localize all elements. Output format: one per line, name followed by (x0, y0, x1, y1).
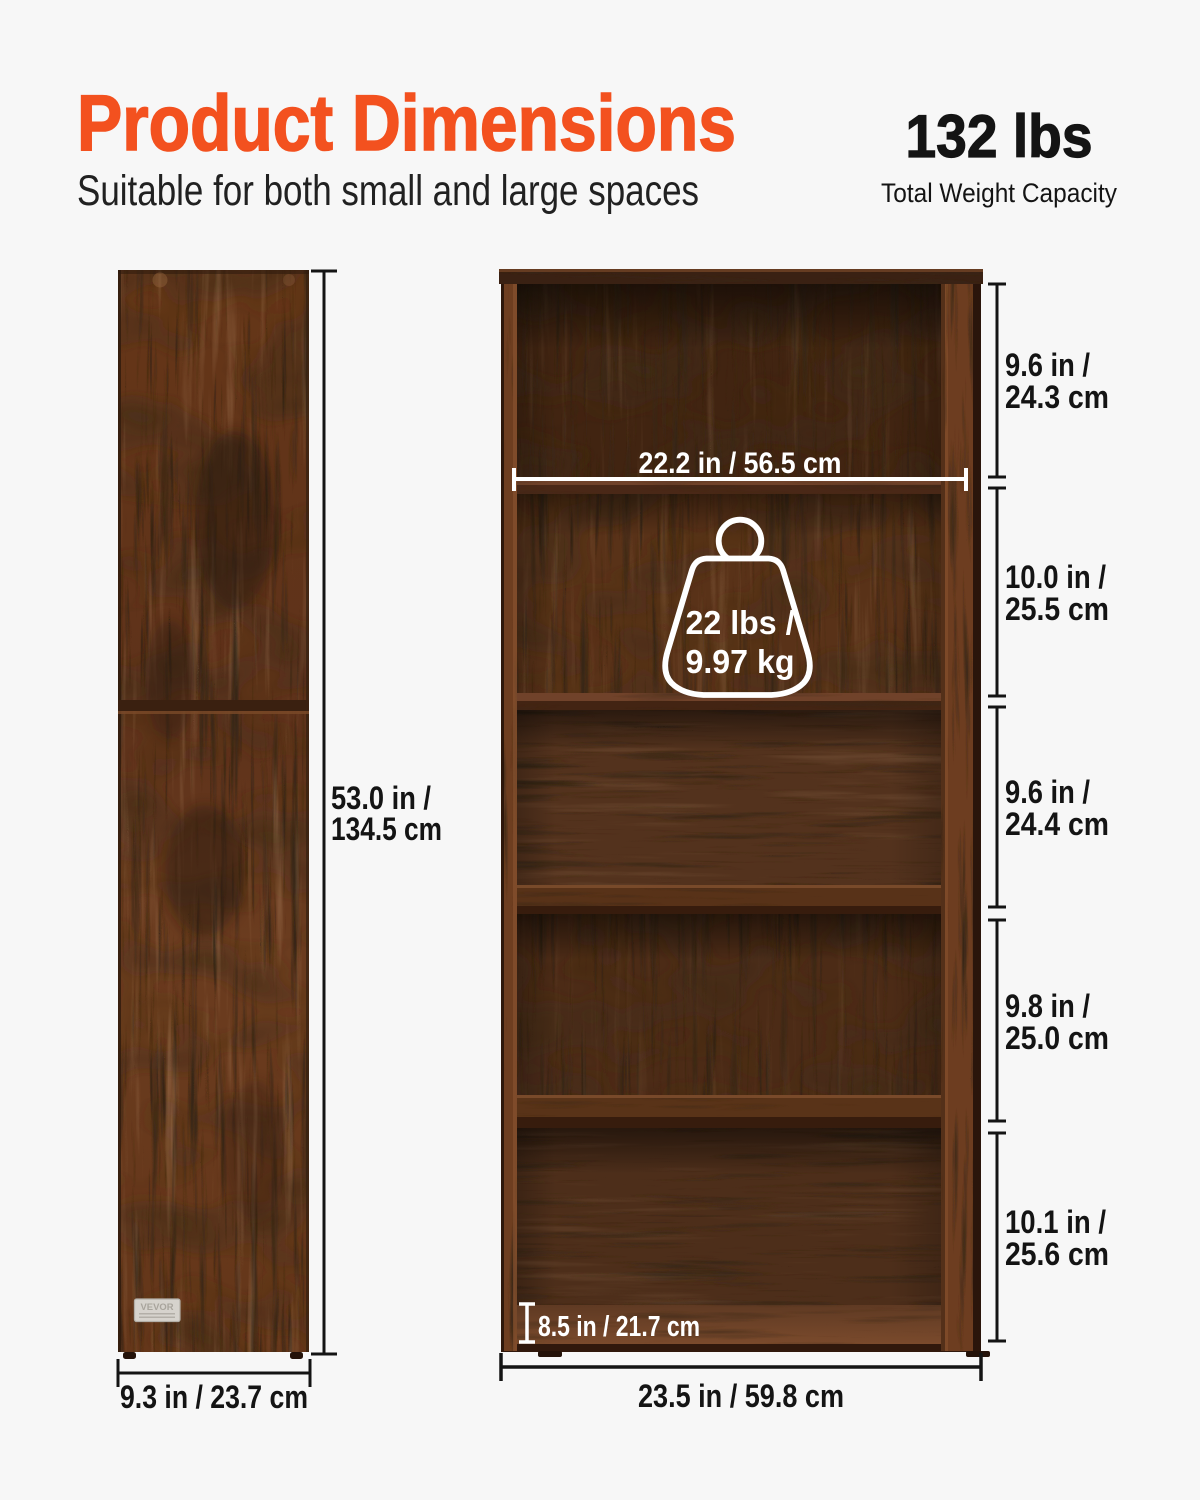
svg-text:24.3 cm: 24.3 cm (1005, 379, 1109, 415)
svg-text:132 lbs: 132 lbs (906, 103, 1093, 170)
svg-text:Product Dimensions: Product Dimensions (77, 78, 736, 167)
svg-text:9.97 kg: 9.97 kg (686, 643, 795, 680)
svg-text:9.6 in /: 9.6 in / (1005, 774, 1090, 810)
svg-text:10.0 in /: 10.0 in / (1005, 559, 1106, 595)
svg-text:9.6 in /: 9.6 in / (1005, 347, 1090, 383)
svg-text:9.3 in / 23.7 cm: 9.3 in / 23.7 cm (120, 1379, 308, 1415)
svg-text:22 lbs /: 22 lbs / (686, 604, 795, 641)
svg-text:Total Weight Capacity: Total Weight Capacity (881, 178, 1117, 208)
svg-text:10.1 in /: 10.1 in / (1005, 1204, 1106, 1240)
svg-text:25.5 cm: 25.5 cm (1005, 591, 1109, 627)
svg-text:23.5 in / 59.8 cm: 23.5 in / 59.8 cm (638, 1378, 844, 1414)
svg-text:VEVOR: VEVOR (141, 1302, 174, 1313)
svg-text:24.4 cm: 24.4 cm (1005, 806, 1109, 842)
svg-text:Suitable for both small and la: Suitable for both small and large spaces (77, 167, 699, 215)
svg-text:8.5 in / 21.7 cm: 8.5 in / 21.7 cm (538, 1311, 700, 1343)
svg-text:22.2 in / 56.5 cm: 22.2 in / 56.5 cm (639, 447, 842, 480)
svg-text:134.5 cm: 134.5 cm (331, 811, 442, 847)
svg-text:9.8 in /: 9.8 in / (1005, 988, 1090, 1024)
svg-text:25.6 cm: 25.6 cm (1005, 1236, 1109, 1272)
svg-text:25.0 cm: 25.0 cm (1005, 1020, 1109, 1056)
